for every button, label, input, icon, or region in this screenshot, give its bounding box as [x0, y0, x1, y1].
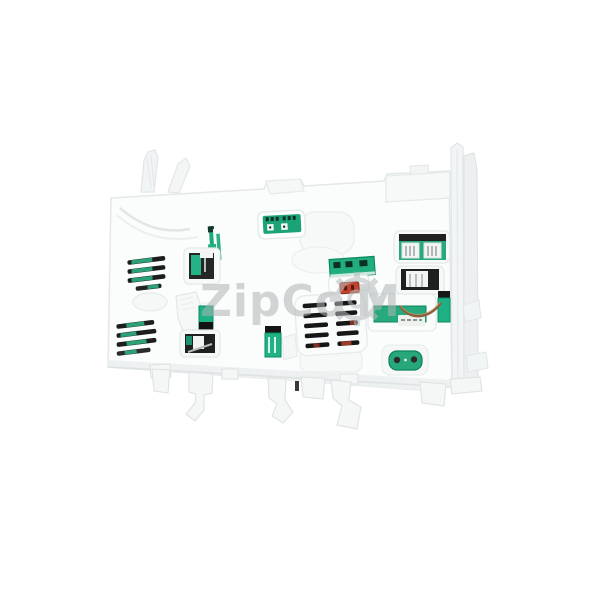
- right-fin: [451, 143, 488, 387]
- product-photo: ZipCo M: [0, 0, 600, 600]
- control-module-illustration: [0, 0, 600, 600]
- teal-connector-right: [438, 298, 450, 322]
- raised-box: [386, 172, 450, 202]
- teal-connector-left: [199, 302, 213, 331]
- leg-small: [152, 369, 170, 393]
- mounting-prong: [168, 158, 190, 193]
- fin-foot-tab: [466, 352, 488, 372]
- red-slat-accent: [341, 341, 351, 346]
- connector-socket-left-lower: [180, 330, 220, 357]
- dark-notch: [295, 381, 299, 391]
- leg-center: [268, 378, 293, 423]
- leg-right: [420, 382, 446, 406]
- connector-socket-left-upper: [184, 248, 220, 284]
- rail-tab: [222, 369, 238, 379]
- mounting-fork: [141, 150, 158, 192]
- foot-right: [450, 377, 482, 394]
- dip-switch-window: [257, 210, 305, 239]
- leg-hook-left: [186, 372, 213, 421]
- fin-ridge: [457, 148, 458, 384]
- oval-bump: [133, 293, 167, 311]
- connector-socket-right-lower: [396, 266, 444, 294]
- connector-socket-right-upper: [394, 231, 450, 263]
- top-step-tab: [266, 179, 304, 194]
- center-vent-grille: [294, 292, 368, 357]
- white-clip: [282, 334, 297, 360]
- red-slat-accent: [350, 321, 356, 325]
- ground-plate: [382, 345, 428, 375]
- screw-hole: [394, 357, 400, 363]
- red-connector-slot: [340, 282, 360, 294]
- screw-hole: [411, 356, 417, 362]
- fin-flange: [464, 153, 478, 381]
- leg-hook-right: [331, 380, 361, 429]
- red-slat-accent: [313, 343, 319, 347]
- leg-block: [301, 377, 325, 399]
